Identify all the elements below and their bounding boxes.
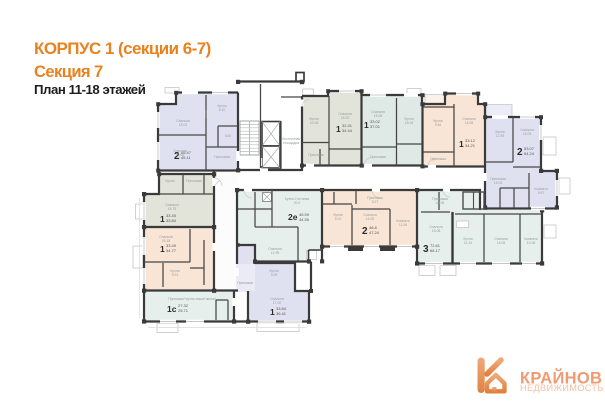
svg-text:33.84: 33.84 xyxy=(166,218,177,223)
svg-text:68.17: 68.17 xyxy=(430,248,441,253)
svg-text:25.71: 25.71 xyxy=(178,308,189,313)
svg-text:9.87: 9.87 xyxy=(538,191,545,195)
svg-text:Прихожая: Прихожая xyxy=(214,155,230,159)
svg-text:1: 1 xyxy=(160,244,165,254)
svg-text:3: 3 xyxy=(423,244,429,255)
svg-text:8.27: 8.27 xyxy=(372,200,379,204)
svg-text:площадка: площадка xyxy=(283,141,299,145)
svg-text:44.55: 44.55 xyxy=(299,217,310,222)
svg-text:2е: 2е xyxy=(288,212,298,222)
svg-text:47.24: 47.24 xyxy=(369,230,380,235)
svg-text:1: 1 xyxy=(364,120,369,130)
svg-text:8.91: 8.91 xyxy=(172,273,179,277)
svg-text:14.99: 14.99 xyxy=(271,251,280,255)
svg-text:14.92: 14.92 xyxy=(366,217,375,221)
svg-text:54.24: 54.24 xyxy=(524,151,535,156)
svg-text:10.06: 10.06 xyxy=(436,201,445,205)
svg-text:11.06: 11.06 xyxy=(399,223,407,227)
svg-text:9.09: 9.09 xyxy=(271,273,278,277)
svg-text:15.78: 15.78 xyxy=(168,207,177,211)
svg-text:2: 2 xyxy=(362,226,368,237)
svg-text:10.08: 10.08 xyxy=(527,241,536,245)
svg-text:1: 1 xyxy=(459,139,464,149)
svg-text:Прихожая: Прихожая xyxy=(430,157,446,161)
svg-text:34.77: 34.77 xyxy=(166,248,177,253)
svg-text:12.55: 12.55 xyxy=(496,134,505,138)
svg-text:НЕДВИЖИМОСТЬ: НЕДВИЖИМОСТЬ xyxy=(520,383,604,393)
svg-text:5.60: 5.60 xyxy=(225,134,232,138)
svg-text:15.02: 15.02 xyxy=(179,123,188,127)
svg-text:8.10: 8.10 xyxy=(219,108,226,112)
svg-text:1с: 1с xyxy=(167,304,177,314)
svg-text:10.06: 10.06 xyxy=(310,121,319,125)
svg-text:15.18: 15.18 xyxy=(162,239,171,243)
svg-text:16.08: 16.08 xyxy=(465,121,474,125)
svg-text:Кухня: Кухня xyxy=(165,179,174,183)
svg-text:15.08: 15.08 xyxy=(374,114,383,118)
svg-text:36.41: 36.41 xyxy=(276,311,287,316)
svg-text:34.21: 34.21 xyxy=(465,143,476,148)
svg-text:Прихожая: Прихожая xyxy=(308,153,324,157)
svg-text:34.44: 34.44 xyxy=(342,128,353,133)
svg-text:2: 2 xyxy=(517,147,523,158)
svg-text:1: 1 xyxy=(160,214,165,224)
svg-text:9.46: 9.46 xyxy=(435,123,442,127)
svg-text:20.0: 20.0 xyxy=(294,201,301,205)
svg-text:37.01: 37.01 xyxy=(370,124,381,129)
svg-text:Прихожая: Прихожая xyxy=(237,281,253,285)
svg-text:1: 1 xyxy=(270,307,275,317)
svg-text:15.08: 15.08 xyxy=(523,132,532,136)
svg-text:15.08: 15.08 xyxy=(432,229,441,233)
svg-text:15.03: 15.03 xyxy=(494,181,503,185)
svg-text:Прихожая: Прихожая xyxy=(370,155,386,159)
svg-text:1: 1 xyxy=(336,124,341,134)
svg-text:Прихожая: Прихожая xyxy=(186,179,202,183)
svg-text:10.0: 10.0 xyxy=(335,217,342,221)
svg-text:16.20: 16.20 xyxy=(341,116,350,120)
svg-text:17.00: 17.00 xyxy=(273,301,282,305)
svg-text:15.04: 15.04 xyxy=(405,121,414,125)
svg-text:11.24: 11.24 xyxy=(464,241,472,245)
svg-text:15.09: 15.09 xyxy=(176,153,185,157)
svg-text:Прихожая+кухня-ниша+жилая: Прихожая+кухня-ниша+жилая xyxy=(168,297,216,301)
svg-text:15.05: 15.05 xyxy=(497,241,506,245)
